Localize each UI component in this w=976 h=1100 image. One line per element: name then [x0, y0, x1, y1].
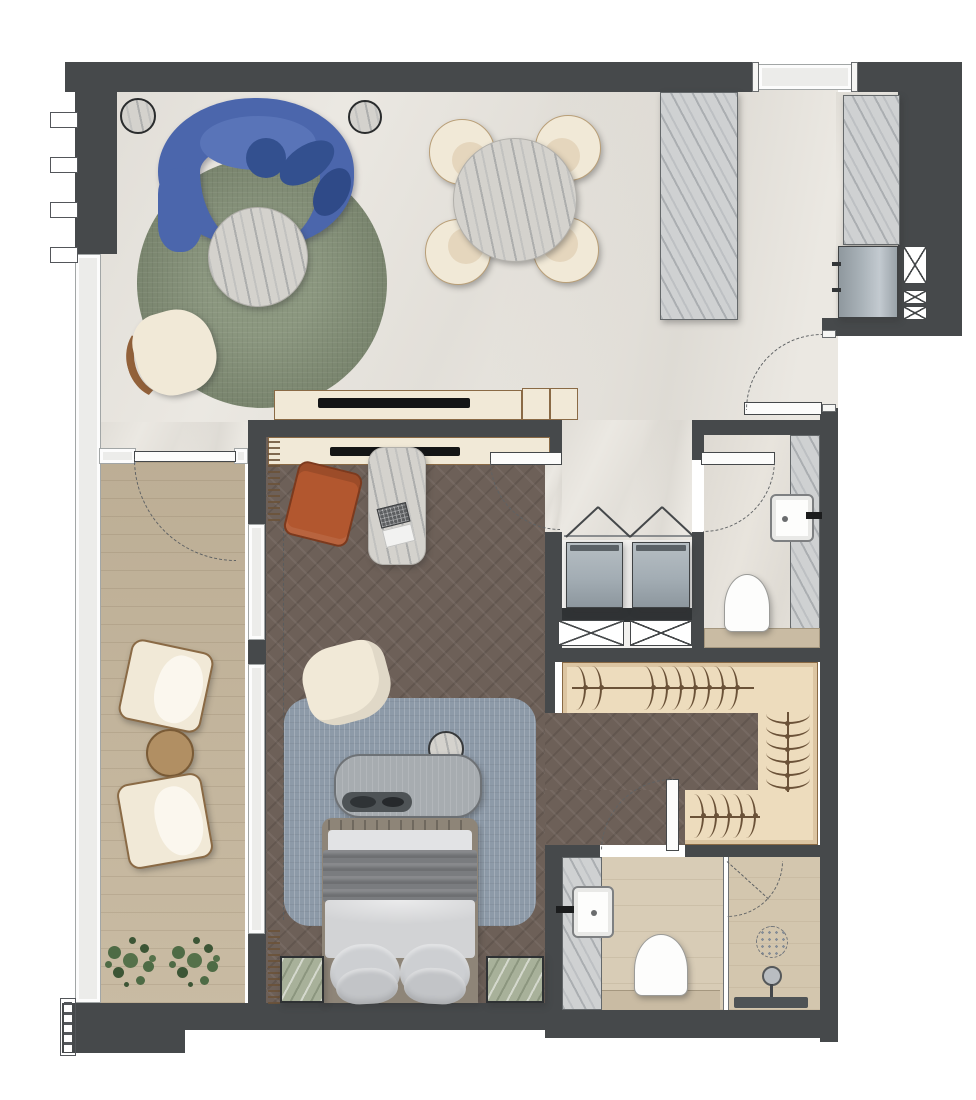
wall-wc-west-b [692, 532, 704, 648]
lounge-chair-1 [116, 637, 215, 735]
mullion-tab-1 [50, 112, 78, 128]
lounge-cushion [145, 650, 211, 730]
planter-1 [101, 929, 165, 995]
double-bed [322, 818, 478, 1003]
wall-closet-north [545, 648, 820, 662]
shaft-x-box-1 [903, 246, 927, 284]
dining-table [453, 138, 577, 262]
dryer [632, 542, 690, 608]
kitchen-counter [843, 95, 900, 245]
balcony-side-table [146, 729, 194, 777]
side-cabinet [522, 388, 578, 420]
floor-foyer [562, 420, 692, 544]
shower-bench [734, 997, 808, 1008]
lounge-chair-2 [115, 771, 215, 871]
appliance-handle-1 [832, 262, 841, 266]
wall-right-upper [932, 62, 962, 336]
planter-2 [165, 929, 229, 995]
sofa-arm [158, 168, 202, 252]
appliance-handle-2 [832, 288, 841, 292]
window-bedroom-west-b [248, 664, 265, 934]
lounge-cushion [147, 781, 211, 861]
window-top-jamb-left [752, 62, 759, 92]
mirror-side-table-1 [120, 98, 156, 134]
bath-sink [572, 886, 614, 938]
wc-faucet [806, 512, 822, 519]
wall-bedroom-north [248, 420, 562, 437]
nightstand-left [280, 956, 324, 1003]
shaft-x-box-3 [903, 306, 927, 320]
wall-bath-north-a [545, 845, 600, 857]
marble-column [660, 92, 738, 320]
plant-icon [187, 953, 202, 968]
wall-closet-west-sliver [545, 662, 555, 715]
washer [566, 542, 623, 608]
wc-toilet [724, 574, 770, 632]
mirror-side-table-2 [348, 100, 382, 134]
entry-jamb-top [822, 330, 836, 338]
wall-bath-north-b [685, 845, 820, 857]
floor-plan [0, 0, 976, 1100]
window-west-facade [75, 254, 101, 1003]
bath-sink-drain [591, 910, 597, 916]
bench-tray [342, 792, 412, 812]
nightstand-right [486, 956, 544, 1003]
wall-pier-northwest [75, 62, 117, 254]
mullion-tab-2 [50, 157, 78, 173]
mullion-tab-3 [50, 202, 78, 218]
wall-wc-north [692, 420, 822, 435]
appliance-cabinet [838, 246, 898, 318]
window-balcony-door-side-a [99, 448, 136, 464]
laundry-x-box-2 [630, 620, 692, 646]
window-top-wall [758, 64, 852, 90]
bath-toilet [634, 934, 688, 996]
floor-drain [756, 926, 788, 958]
tray-dish-2 [382, 797, 404, 807]
bed-throw [323, 850, 477, 902]
plant-icon [123, 953, 138, 968]
floor-closet-aisle-1 [545, 713, 758, 790]
coffee-table [208, 207, 308, 307]
tv-living [318, 398, 470, 408]
corner-post-bottom-left [60, 998, 76, 1056]
wall-bottom-right [545, 1008, 838, 1038]
wc-sink-drain [782, 516, 788, 522]
wall-band-kitchen [822, 318, 962, 336]
laundry-x-box-1 [558, 620, 624, 646]
wall-east-lower [820, 408, 838, 1042]
bath-faucet [556, 906, 574, 913]
wall-bath-west [545, 857, 562, 1010]
shaft-x-box-2 [903, 290, 927, 304]
tray-dish-1 [350, 796, 376, 808]
wall-top [65, 62, 758, 92]
window-balcony-door-side-b [234, 448, 248, 464]
shower-head [762, 966, 782, 986]
window-top-jamb-right [851, 62, 858, 92]
mullion-tab-4 [50, 247, 78, 263]
curtain-coil-bottom [268, 926, 280, 1004]
curtain-coil-top [268, 439, 280, 521]
window-bedroom-west-a [248, 524, 265, 640]
wall-bottom-chunk [62, 1003, 185, 1053]
entry-jamb-bottom [822, 404, 836, 412]
bed-headrail-tufting [328, 820, 472, 830]
